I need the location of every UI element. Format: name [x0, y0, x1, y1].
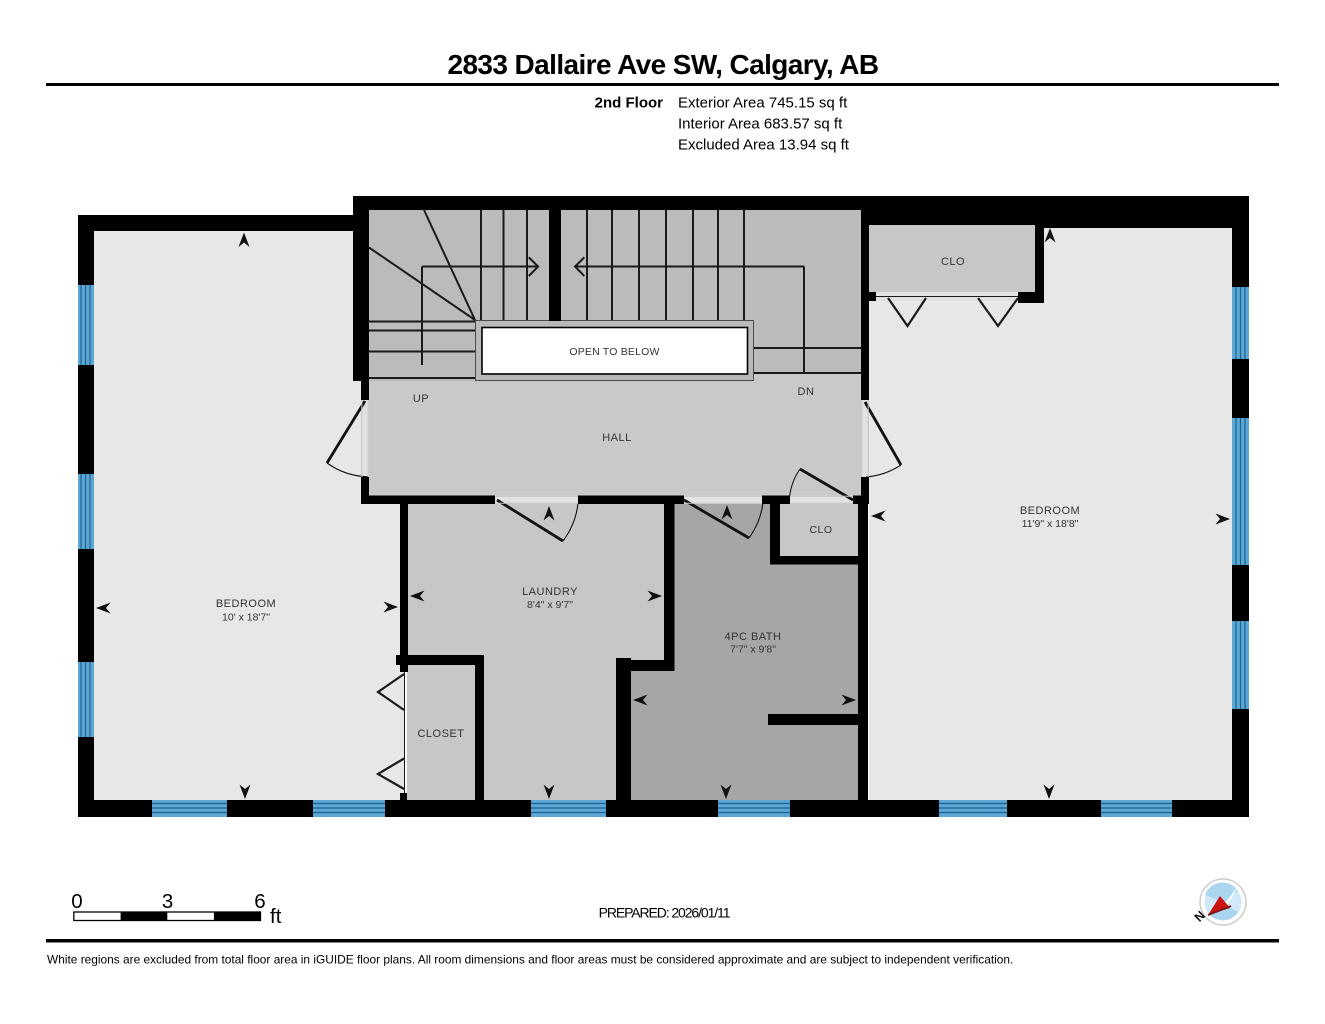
svg-text:PREPARED: 2026/01/11: PREPARED: 2026/01/11: [599, 905, 731, 921]
svg-text:CLOSET: CLOSET: [417, 728, 464, 740]
svg-text:Interior Area 683.57 sq ft: Interior Area 683.57 sq ft: [678, 116, 843, 133]
svg-text:Exterior Area 745.15 sq ft: Exterior Area 745.15 sq ft: [678, 95, 848, 112]
svg-text:HALL: HALL: [602, 432, 632, 444]
svg-text:DN: DN: [798, 386, 815, 398]
svg-text:0: 0: [71, 890, 82, 913]
svg-text:10' x 18'7": 10' x 18'7": [222, 612, 270, 624]
svg-text:LAUNDRY: LAUNDRY: [522, 586, 578, 598]
svg-text:2833 Dallaire Ave SW, Calgary,: 2833 Dallaire Ave SW, Calgary, AB: [447, 49, 878, 80]
svg-text:Excluded Area 13.94 sq ft: Excluded Area 13.94 sq ft: [678, 137, 850, 154]
svg-text:ft: ft: [270, 905, 282, 928]
svg-text:CLO: CLO: [941, 256, 965, 268]
svg-text:6: 6: [254, 890, 265, 913]
svg-text:3: 3: [162, 890, 173, 913]
svg-text:CLO: CLO: [809, 524, 832, 536]
svg-text:2nd Floor: 2nd Floor: [595, 95, 663, 112]
svg-text:BEDROOM: BEDROOM: [216, 598, 276, 610]
svg-text:11'9" x 18'8": 11'9" x 18'8": [1022, 518, 1079, 530]
svg-text:OPEN TO BELOW: OPEN TO BELOW: [569, 346, 659, 358]
svg-text:8'4" x 9'7": 8'4" x 9'7": [527, 599, 573, 611]
svg-text:BEDROOM: BEDROOM: [1020, 505, 1080, 517]
svg-text:White regions are excluded fro: White regions are excluded from total fl…: [47, 953, 1013, 967]
svg-text:4PC BATH: 4PC BATH: [725, 631, 782, 643]
svg-text:UP: UP: [413, 393, 429, 405]
svg-text:7'7" x 9'8": 7'7" x 9'8": [730, 644, 776, 656]
